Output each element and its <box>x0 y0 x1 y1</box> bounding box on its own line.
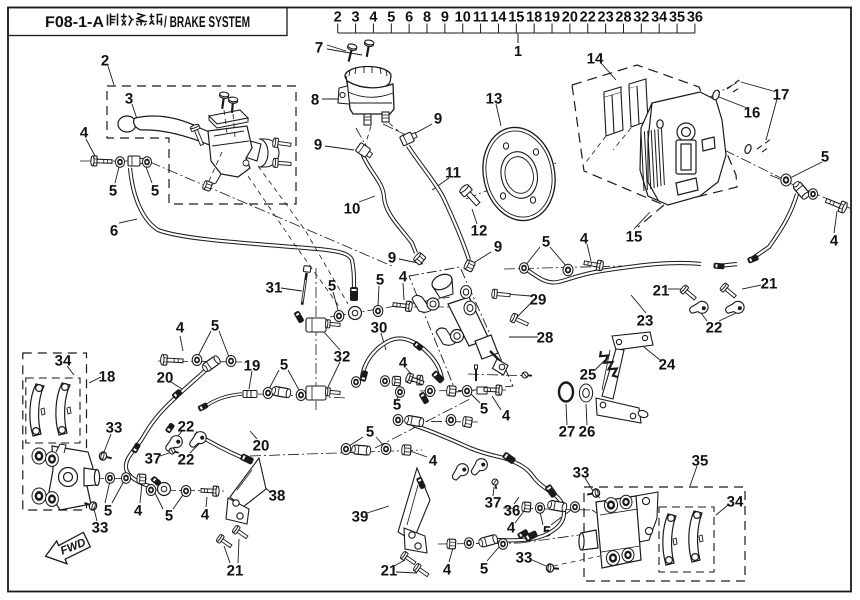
svg-text:16: 16 <box>744 104 761 121</box>
svg-text:10: 10 <box>344 200 361 217</box>
svg-text:22: 22 <box>178 418 195 435</box>
svg-text:5: 5 <box>211 317 219 334</box>
svg-text:39: 39 <box>352 508 369 525</box>
svg-text:28: 28 <box>615 10 631 26</box>
svg-text:3: 3 <box>352 10 360 26</box>
svg-text:4: 4 <box>80 124 89 141</box>
svg-text:21: 21 <box>381 562 398 579</box>
svg-text:15: 15 <box>626 228 643 245</box>
svg-text:7: 7 <box>315 39 323 56</box>
svg-text:8: 8 <box>311 91 319 108</box>
svg-text:21: 21 <box>653 282 670 299</box>
svg-text:12: 12 <box>471 222 488 239</box>
svg-text:23: 23 <box>598 10 614 26</box>
svg-text:9: 9 <box>494 238 502 255</box>
svg-text:9: 9 <box>314 136 322 153</box>
svg-text:5: 5 <box>821 148 829 165</box>
svg-text:5: 5 <box>480 560 488 577</box>
svg-text:33: 33 <box>516 549 533 566</box>
svg-text:4: 4 <box>443 561 452 578</box>
svg-text:11: 11 <box>473 10 488 26</box>
svg-text:24: 24 <box>659 356 676 373</box>
svg-text:5: 5 <box>151 182 159 199</box>
svg-text:2: 2 <box>101 52 109 69</box>
svg-text:5: 5 <box>109 182 117 199</box>
svg-text:9: 9 <box>441 10 449 26</box>
svg-text:32: 32 <box>334 348 351 365</box>
svg-text:26: 26 <box>579 423 596 440</box>
svg-text:5: 5 <box>280 356 288 373</box>
svg-text:9: 9 <box>434 110 442 127</box>
svg-text:4: 4 <box>399 268 408 285</box>
svg-text:34: 34 <box>727 493 744 510</box>
svg-text:23: 23 <box>637 312 654 329</box>
svg-text:33: 33 <box>92 519 109 536</box>
svg-text:6: 6 <box>110 222 118 239</box>
svg-text:8: 8 <box>423 10 431 26</box>
svg-text:32: 32 <box>633 10 649 26</box>
svg-text:29: 29 <box>530 291 547 308</box>
svg-text:5: 5 <box>104 502 112 519</box>
svg-text:28: 28 <box>537 329 554 346</box>
svg-text:17: 17 <box>773 86 790 103</box>
svg-text:14: 14 <box>490 10 506 26</box>
svg-text:33: 33 <box>106 419 123 436</box>
svg-text:20: 20 <box>253 437 270 454</box>
svg-text:19: 19 <box>544 10 560 26</box>
svg-text:10: 10 <box>455 10 471 26</box>
svg-text:37: 37 <box>485 494 502 511</box>
svg-text:5: 5 <box>376 271 384 288</box>
svg-text:18: 18 <box>526 10 542 26</box>
svg-text:5: 5 <box>165 507 173 524</box>
svg-text:34: 34 <box>55 352 72 369</box>
svg-text:20: 20 <box>562 10 578 26</box>
svg-text:3: 3 <box>125 90 133 107</box>
svg-text:35: 35 <box>669 10 685 26</box>
svg-text:21: 21 <box>761 275 778 292</box>
svg-text:4: 4 <box>369 10 377 26</box>
svg-text:15: 15 <box>508 10 524 26</box>
svg-text:30: 30 <box>371 319 388 336</box>
svg-text:4: 4 <box>176 319 185 336</box>
svg-text:6: 6 <box>405 10 413 26</box>
svg-text:36: 36 <box>504 502 521 519</box>
svg-text:4: 4 <box>507 519 516 536</box>
svg-text:13: 13 <box>486 90 503 107</box>
svg-text:34: 34 <box>651 10 667 26</box>
svg-text:5: 5 <box>393 396 401 413</box>
svg-text:5: 5 <box>387 10 395 26</box>
svg-text:35: 35 <box>692 452 709 469</box>
svg-text:/ BRAKE SYSTEM: / BRAKE SYSTEM <box>164 14 250 31</box>
svg-text:2: 2 <box>334 10 342 26</box>
svg-text:22: 22 <box>706 319 723 336</box>
svg-text:4: 4 <box>830 232 839 249</box>
svg-text:9: 9 <box>388 249 396 266</box>
svg-text:22: 22 <box>580 10 596 26</box>
svg-text:4: 4 <box>201 506 210 523</box>
svg-text:38: 38 <box>269 487 286 504</box>
svg-text:4: 4 <box>502 407 511 424</box>
svg-text:31: 31 <box>266 279 283 296</box>
svg-text:20: 20 <box>157 369 174 386</box>
svg-text:11: 11 <box>445 164 461 181</box>
svg-text:4: 4 <box>580 230 589 247</box>
svg-text:5: 5 <box>328 277 336 294</box>
svg-text:33: 33 <box>573 464 590 481</box>
svg-text:25: 25 <box>580 366 597 383</box>
svg-text:4: 4 <box>399 354 408 371</box>
svg-text:22: 22 <box>178 451 195 468</box>
svg-text:18: 18 <box>99 368 116 385</box>
svg-text:14: 14 <box>587 50 604 67</box>
svg-text:5: 5 <box>366 423 374 440</box>
svg-text:4: 4 <box>134 502 143 519</box>
svg-text:36: 36 <box>687 10 703 26</box>
svg-text:27: 27 <box>559 423 576 440</box>
svg-text:21: 21 <box>227 562 244 579</box>
svg-text:1: 1 <box>514 44 522 60</box>
svg-text:5: 5 <box>542 233 550 250</box>
svg-text:F08-1-A: F08-1-A <box>45 14 104 31</box>
svg-text:19: 19 <box>244 357 261 374</box>
svg-text:37: 37 <box>145 450 162 467</box>
svg-text:5: 5 <box>480 400 488 417</box>
svg-text:4: 4 <box>429 452 438 469</box>
